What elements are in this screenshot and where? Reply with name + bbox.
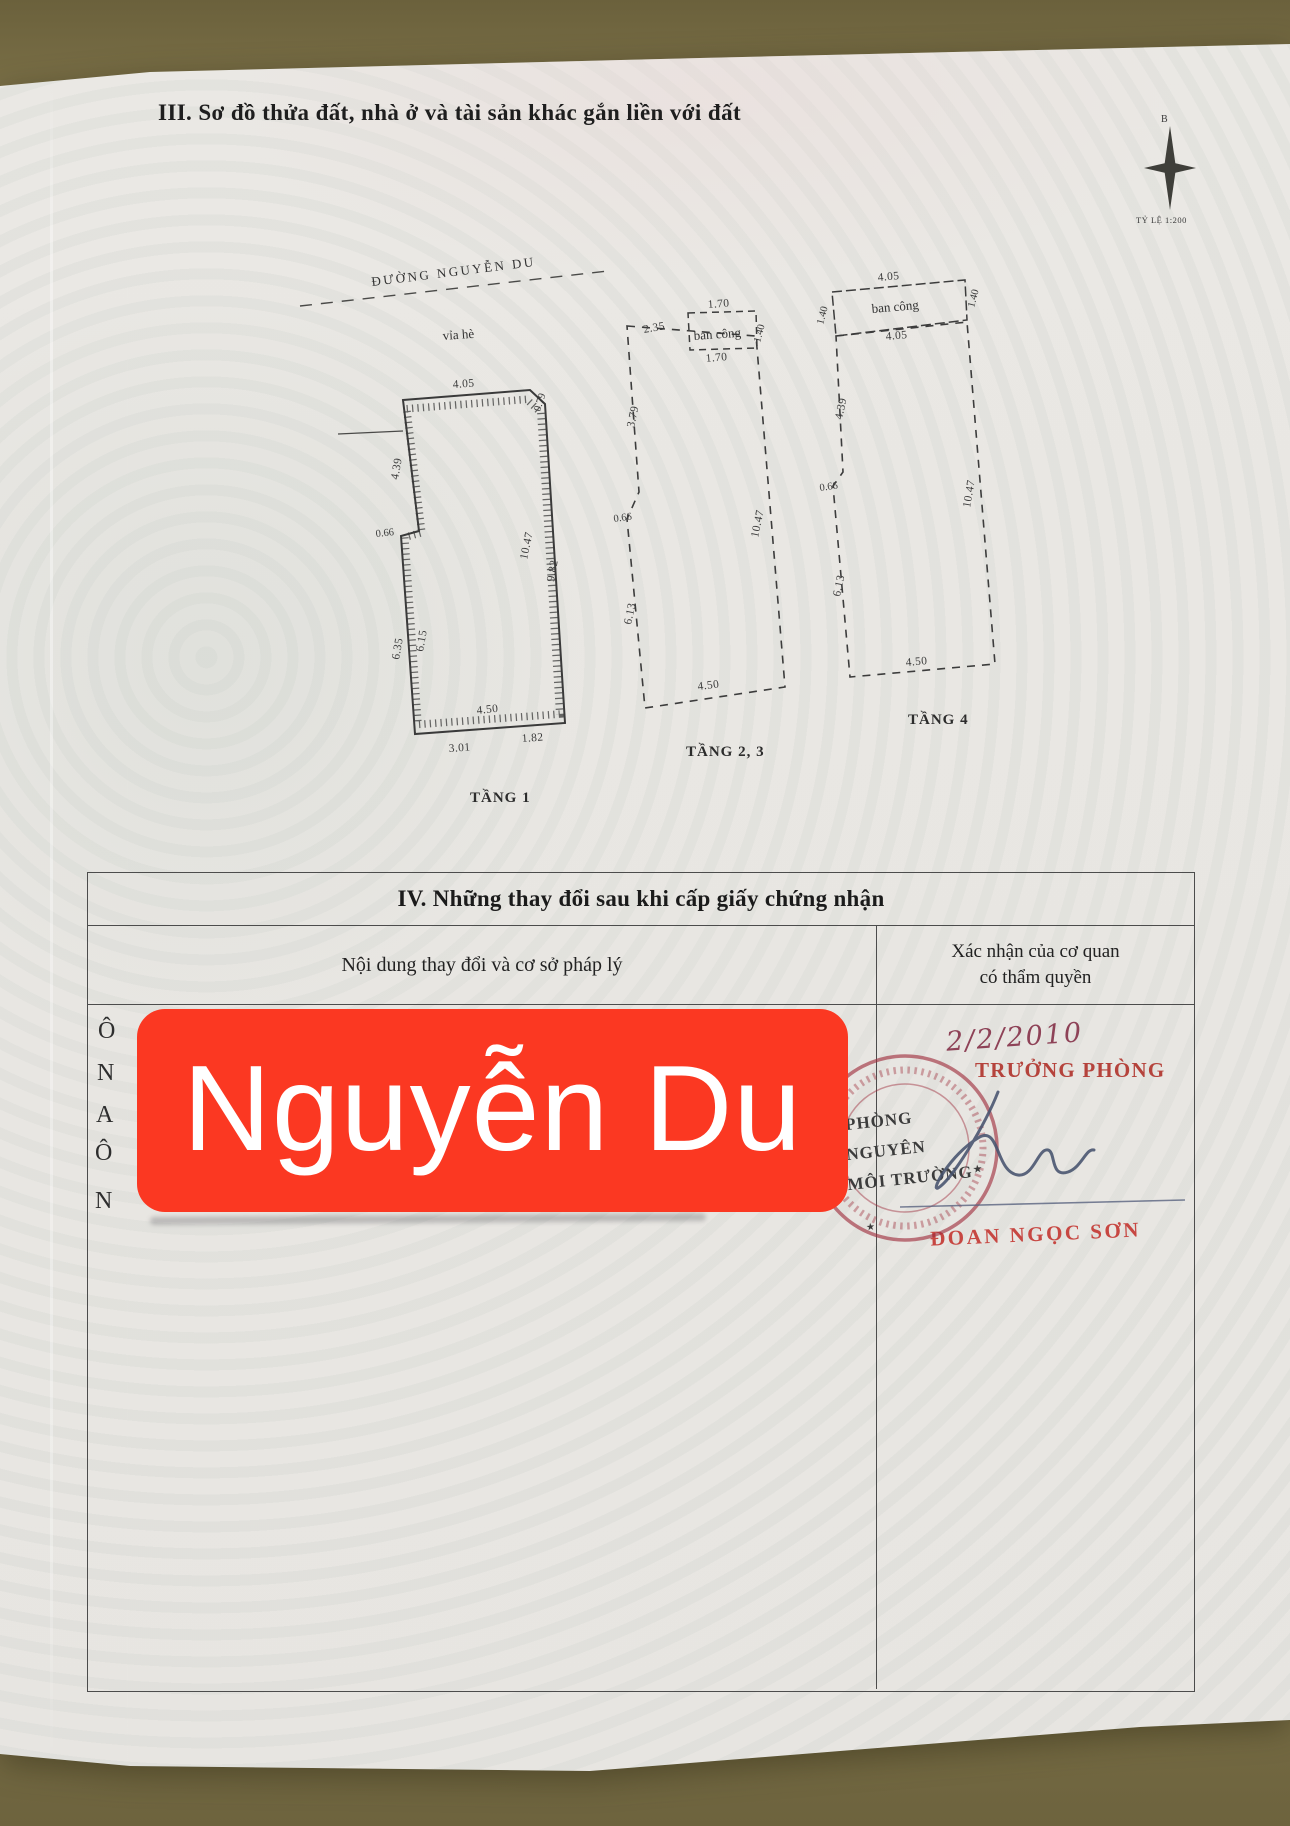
tang23-dim-leftlower: 6.13 — [622, 602, 638, 626]
tang1-dim-right-inner: 10.47 — [518, 531, 536, 561]
section4-table: IV. Những thay đổi sau khi cấp giấy chứn… — [87, 872, 1195, 1692]
tang4-dim-balcony-left: 1.40 — [815, 305, 830, 326]
tang23-dim-balcony-right: 1.40 — [752, 323, 767, 344]
col-header-authority-line2: có thẩm quyền — [980, 965, 1092, 991]
col-header-authority-line1: Xác nhận của cơ quan — [951, 939, 1119, 965]
floor-plan-tang4: 4.05 1.40 ban công 1.40 4.05 4.39 0.66 6… — [815, 270, 995, 728]
tang1-dim-leftstep: 0.66 — [375, 527, 394, 540]
tang23-dim-balcony-left: 2.35 — [642, 320, 665, 336]
tang1-dim-leftupper: 4.39 — [389, 457, 405, 480]
tang23-dim-leftupper: 3.79 — [625, 405, 641, 429]
tang23-dim-right: 10.47 — [749, 509, 767, 539]
approver-title: TRƯỞNG PHÒNG — [975, 1058, 1165, 1083]
paper-shadow-wrap: III. Sơ đồ thửa đất, nhà ở và tài sản kh… — [0, 0, 1290, 1826]
tang1-caption: TẦNG 1 — [470, 789, 531, 806]
tang1-dim-bottomright: 1.82 — [521, 732, 544, 745]
tang23-dim-leftstep: 0.66 — [613, 512, 633, 525]
covered-text-fragment: N — [95, 1188, 112, 1215]
tang4-dim-balcony-top: 4.05 — [877, 270, 900, 284]
tang1-dim-topright: 0.79 — [532, 392, 548, 413]
tang23-outline-dashed — [627, 326, 785, 708]
tang23-dim-balcony-bottom: 1.70 — [705, 351, 728, 365]
tang4-dim-balcony-right: 1.40 — [966, 288, 981, 309]
section4-title: IV. Những thay đổi sau khi cấp giấy chứn… — [88, 873, 1194, 926]
photo-of-certificate: III. Sơ đồ thửa đất, nhà ở và tài sản kh… — [0, 0, 1290, 1826]
col-header-changes: Nội dung thay đổi và cơ sở pháp lý — [88, 926, 877, 1004]
paper-fold-crease — [50, 80, 53, 1760]
sidewalk-label: vỉa hè — [442, 326, 475, 343]
tang1-dim-leftlower-outer: 6.35 — [390, 637, 406, 660]
map-scale-label: TỶ LỆ 1:200 — [1136, 215, 1187, 225]
tang4-outline-dashed — [833, 322, 995, 677]
floor-plan-tang1: 4.05 0.79 4.39 0.66 6.15 6.35 10.47 9.82… — [375, 378, 565, 806]
street-annotation: ĐƯỜNG NGUYỄN DU vỉa hè — [300, 254, 608, 434]
covered-text-fragment: Ô — [95, 1140, 112, 1167]
tang1-dim-bottom: 4.50 — [476, 703, 499, 717]
covered-text-fragment: N — [97, 1060, 114, 1087]
red-label-overlay: Nguyễn Du — [137, 1009, 848, 1212]
authority-cell — [877, 1005, 1194, 1689]
col-header-authority: Xác nhận của cơ quan có thẩm quyền — [877, 926, 1194, 1004]
compass-rose-icon: B TỶ LỆ 1:200 — [1136, 114, 1196, 225]
tang23-caption: TẦNG 2, 3 — [686, 743, 765, 760]
section4-header-row: Nội dung thay đổi và cơ sở pháp lý Xác n… — [88, 926, 1194, 1005]
tang23-dim-balcony-top: 1.70 — [707, 298, 730, 311]
section3-title: III. Sơ đồ thửa đất, nhà ở và tài sản kh… — [158, 100, 1018, 126]
tang4-dim-leftlower: 6.13 — [831, 574, 847, 598]
tang4-dim-bottom: 4.50 — [905, 655, 928, 669]
tang4-dim-leftstep: 0.66 — [819, 481, 839, 494]
tang23-balcony-label: ban công — [693, 325, 742, 343]
street-name-label: ĐƯỜNG NGUYỄN DU — [371, 254, 537, 289]
parcel-connector-line — [338, 431, 403, 434]
street-boundary-dashed-line — [300, 271, 608, 306]
covered-text-fragment: A — [96, 1102, 113, 1129]
tang1-hatch-marks — [405, 399, 560, 724]
tang23-dim-bottom: 4.50 — [697, 678, 720, 693]
tang1-dim-bottomleft: 3.01 — [448, 742, 471, 755]
certificate-page: III. Sơ đồ thửa đất, nhà ở và tài sản kh… — [0, 0, 1290, 1826]
tang4-balcony-label: ban công — [871, 297, 920, 316]
overlay-street-name: Nguyễn Du — [183, 1038, 802, 1184]
tang4-caption: TẦNG 4 — [908, 711, 969, 728]
tang1-parcel-outline — [401, 390, 565, 734]
floor-plan-tang23: 1.70 2.35 ban công 1.40 1.70 3.79 0.66 6… — [613, 298, 785, 760]
tang4-dim-leftupper: 4.39 — [833, 397, 849, 421]
tang1-dim-top: 4.05 — [452, 378, 475, 391]
tang23-balcony-outline — [688, 311, 757, 350]
compass-needle-ns — [1164, 126, 1176, 210]
tang1-dim-right-outer: 9.82 — [545, 559, 561, 582]
tang1-dim-leftlower-inner: 6.15 — [414, 629, 430, 652]
compass-needle-ew — [1144, 162, 1196, 174]
tang4-dim-right: 10.47 — [961, 479, 978, 509]
tang4-dim-balcony-bottom: 4.05 — [885, 329, 908, 343]
covered-text-fragment: Ô — [98, 1018, 115, 1045]
tang4-balcony-outline — [832, 280, 967, 336]
compass-north-label: B — [1161, 114, 1168, 125]
